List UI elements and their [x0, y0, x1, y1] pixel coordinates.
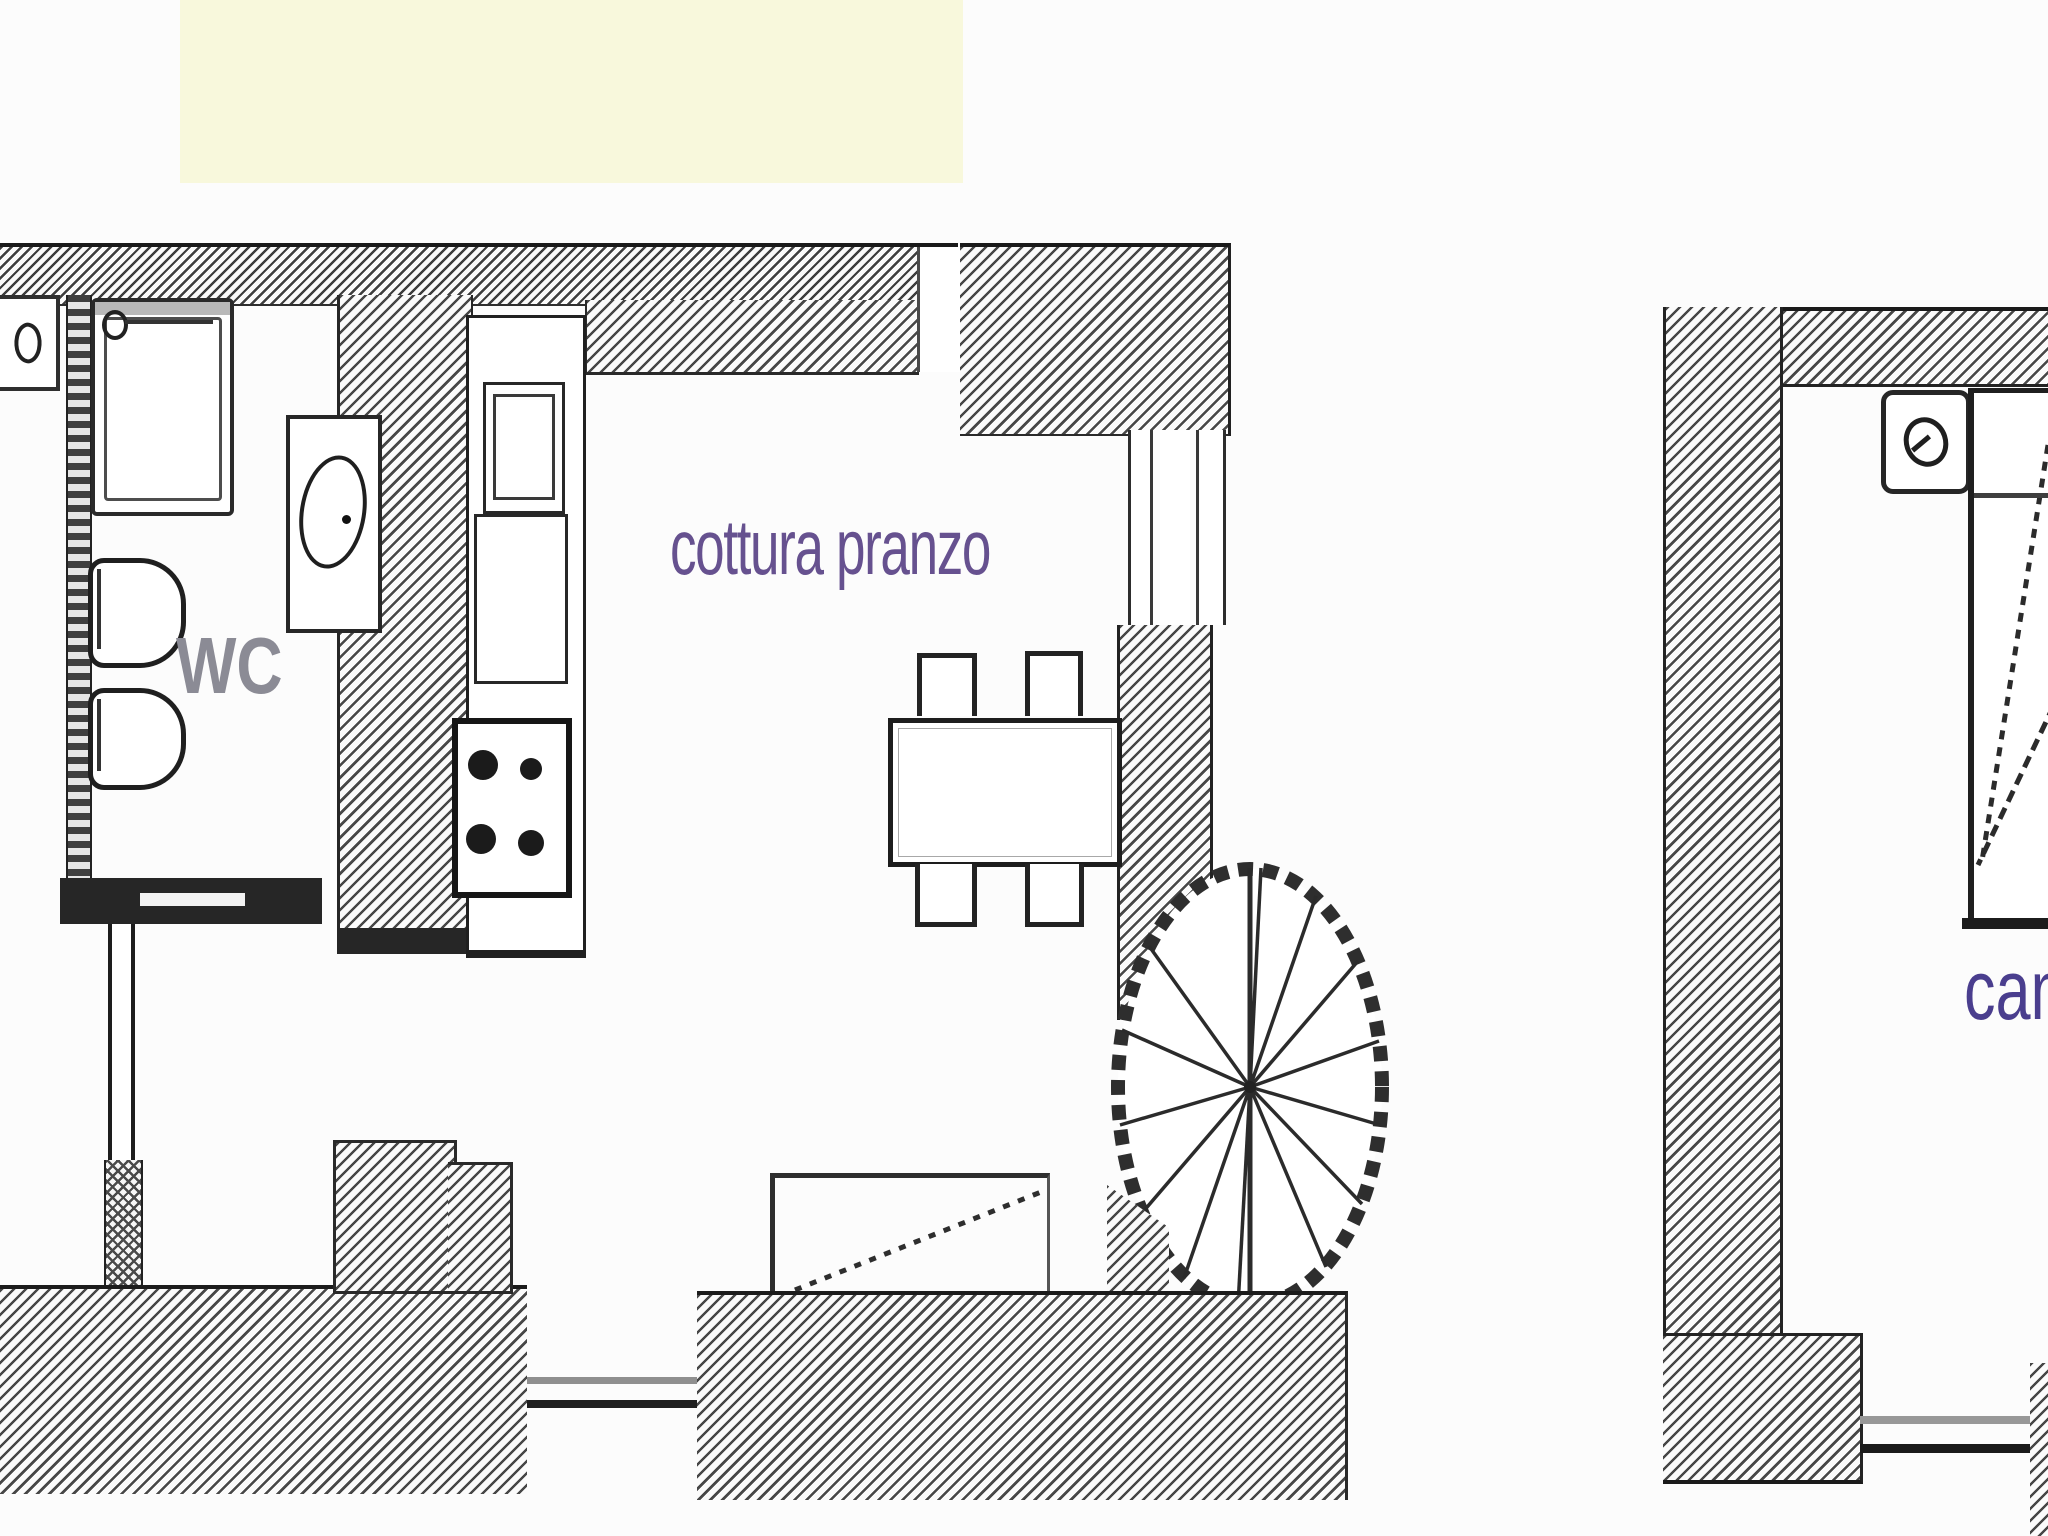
stove — [452, 718, 572, 898]
bidet — [88, 688, 186, 790]
dining-table — [888, 718, 1122, 867]
washbasin — [286, 415, 382, 633]
right-wall-window — [1128, 430, 1226, 625]
wc-bottom-wall-gap — [140, 893, 245, 906]
ramp-diagonal — [775, 1178, 1047, 1296]
washbasin-bowl — [291, 451, 374, 574]
top-wall-thick-part — [585, 300, 919, 375]
middle-wall-cap — [337, 928, 471, 954]
door-handle-icon — [10, 321, 46, 366]
chair — [1025, 864, 1084, 927]
burner-icon — [518, 830, 544, 856]
dining-table-inner-line — [898, 728, 1112, 857]
step-block — [333, 1140, 457, 1294]
door-circle-box — [1881, 390, 1971, 494]
wc-bottom-wall — [60, 878, 322, 924]
bedroom-label: cam — [1964, 948, 2048, 1032]
kitchen-dining-label: cottura pranzo — [646, 508, 1013, 586]
upper-bottom-wall — [1663, 1333, 1863, 1484]
burner-icon — [466, 824, 496, 854]
faucet-line — [125, 320, 213, 324]
floor-plan-canvas: WC cottura pranzo — [0, 0, 2048, 1536]
chair — [915, 864, 977, 927]
upper-threshold-line — [1860, 1416, 2048, 1424]
top-yellow-strip — [180, 0, 963, 183]
faucet-icon — [102, 310, 128, 340]
right-wall-window-line — [1196, 430, 1199, 625]
bottom-wall-right — [697, 1291, 1348, 1500]
lower-left-wall — [108, 924, 135, 1160]
bottom-wall-left — [0, 1285, 527, 1494]
kitchen-sink-basin — [493, 394, 555, 500]
corner-wall-block — [960, 243, 1231, 436]
wc-label: WC — [176, 626, 283, 706]
kitchen-sink — [483, 382, 565, 514]
upper-left-wall — [1663, 307, 1783, 1467]
ramp — [770, 1173, 1050, 1296]
upper-right-edge-wall — [2030, 1363, 2048, 1536]
bed-diagonals — [1974, 393, 2048, 923]
entry-door-box — [0, 295, 60, 391]
bidet-tank-line — [97, 699, 101, 771]
chair — [917, 653, 977, 716]
washbasin-drain-dot — [342, 515, 351, 524]
doorway-threshold-line — [527, 1377, 697, 1384]
bed-headboard-line — [1974, 493, 2048, 498]
lower-left-wall-foot — [104, 1160, 143, 1288]
right-wall-window-line — [1150, 430, 1153, 625]
shower-tray-inner — [104, 317, 222, 501]
top-wall-window-gap — [917, 247, 963, 372]
chair — [1025, 651, 1083, 716]
bed-foot-line — [1962, 918, 2048, 929]
doorway-threshold-line — [527, 1400, 697, 1408]
top-wall — [0, 243, 958, 306]
bed — [1968, 388, 2048, 923]
toilet — [88, 558, 186, 668]
upper-threshold-line — [1860, 1444, 2048, 1453]
burner-icon — [520, 758, 542, 780]
step-block-upper — [448, 1162, 513, 1294]
toilet-tank-line — [97, 569, 101, 649]
kitchen-worktop-unit — [474, 514, 568, 684]
shower-tray — [91, 298, 234, 516]
burner-icon — [468, 750, 498, 780]
